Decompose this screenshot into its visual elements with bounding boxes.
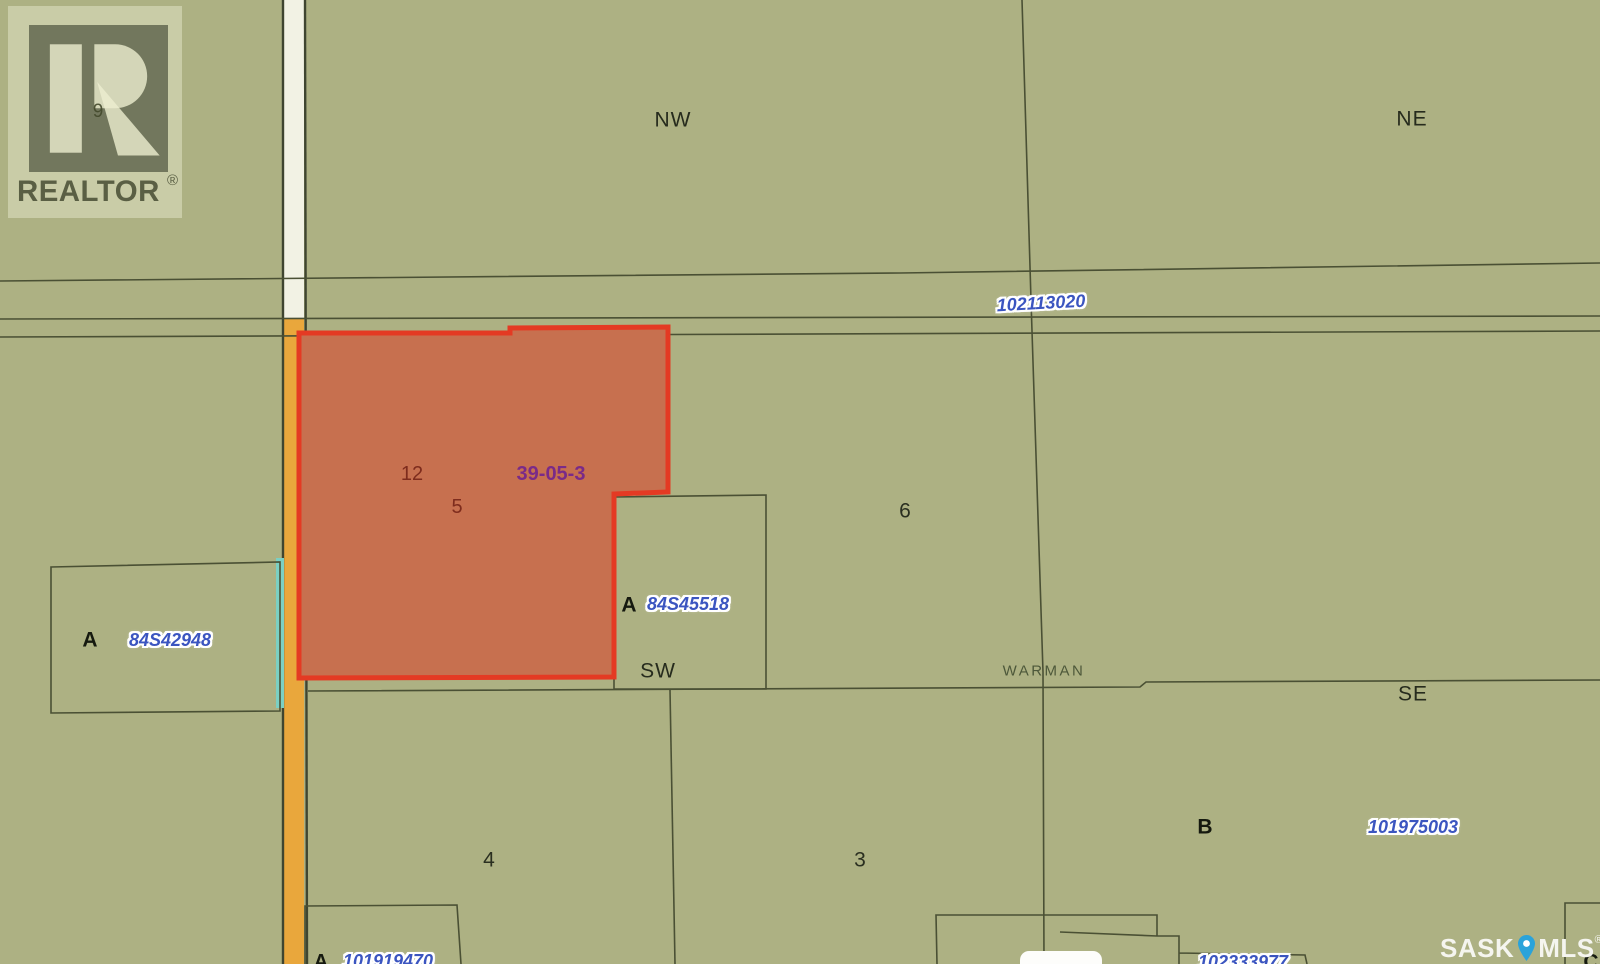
- quarter-label-se: SE: [1398, 684, 1428, 705]
- map-pin-icon: [1518, 935, 1535, 964]
- highlight-number-5: 5: [451, 497, 462, 517]
- parcel-center-id: 84S45518: [647, 595, 729, 613]
- map-canvas: NW NE SW SE WARMAN 102113020 12 5 39-05-…: [0, 0, 1600, 964]
- parcel-southeast-id: 101975003: [1368, 818, 1458, 836]
- township-label: 39-05-3: [517, 464, 586, 484]
- parcel-west-letter: A: [82, 630, 97, 651]
- parcel-center-outline: [614, 495, 766, 689]
- section-number-6: 6: [899, 501, 911, 522]
- section-number-9: 9: [93, 101, 104, 123]
- municipality-label: WARMAN: [1003, 664, 1086, 679]
- parcel-bottom-center-id: 102333977: [1198, 953, 1288, 964]
- parcel-southeast-letter: B: [1197, 817, 1212, 838]
- parcel-bottom-left-letter: A: [314, 952, 328, 964]
- parcel-bottom-left-id: 101919470: [343, 952, 433, 964]
- highlighted-parcel: [299, 327, 668, 678]
- road-parcel-id-label: 102113020: [996, 292, 1086, 315]
- saskmls-logo: SASK MLS ®: [1440, 933, 1600, 964]
- quarter-label-sw: SW: [640, 661, 676, 682]
- saskmls-registered-mark: ®: [1595, 934, 1600, 946]
- section-number-4: 4: [483, 850, 495, 871]
- parcel-center-letter: A: [621, 595, 636, 616]
- saskmls-sask-text: SASK: [1440, 933, 1514, 964]
- quarter-label-ne: NE: [1396, 109, 1427, 130]
- realtor-logo-icon: [29, 25, 168, 172]
- parcel-boundaries: [0, 0, 1600, 964]
- road-north-white: [284, 0, 304, 319]
- saskmls-mls-text: MLS: [1538, 933, 1594, 964]
- realtor-wordmark: REALTOR: [10, 175, 167, 209]
- section-number-3: 3: [854, 850, 866, 871]
- realtor-registered-mark: ®: [167, 172, 178, 189]
- highlight-number-12: 12: [401, 464, 423, 484]
- parcel-west-id: 84S42948: [129, 631, 211, 649]
- clipped-label-halo: [1020, 951, 1102, 964]
- quarter-label-nw: NW: [655, 110, 692, 131]
